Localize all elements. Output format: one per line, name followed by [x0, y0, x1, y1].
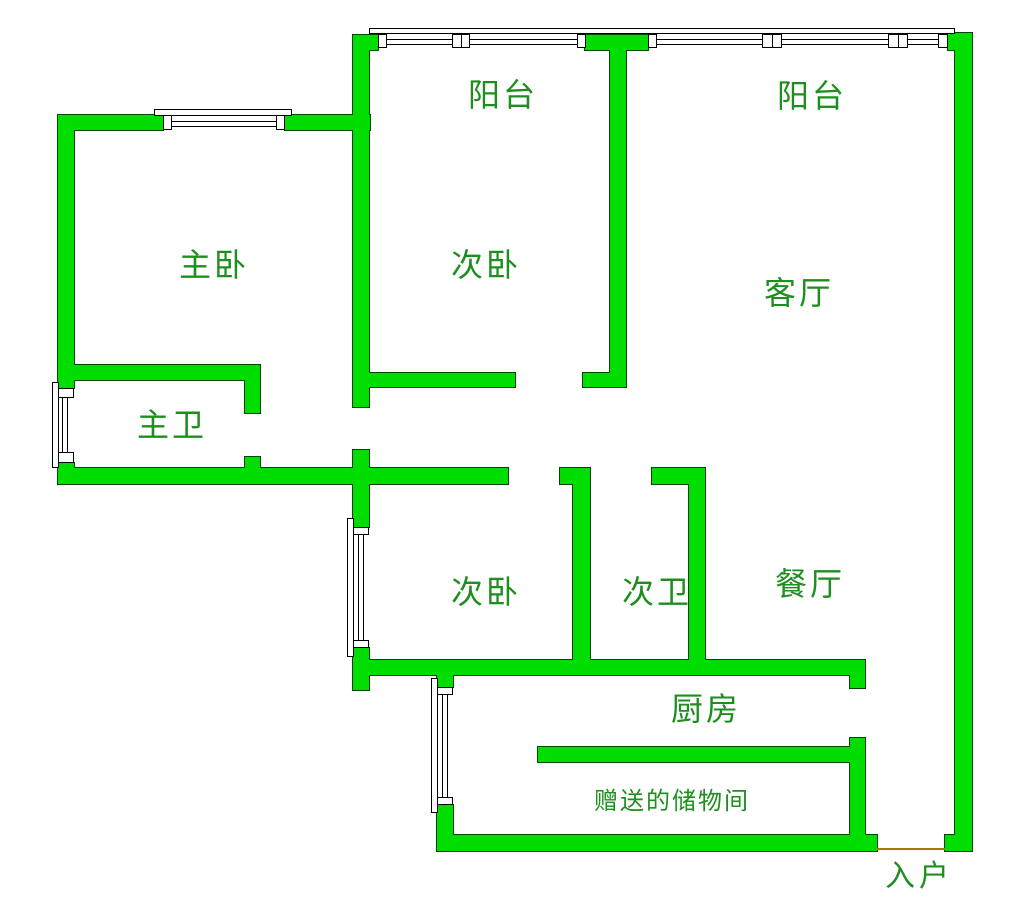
- window-glass-line: [363, 535, 364, 640]
- window-jamb: [353, 640, 369, 648]
- wall-bath2-left: [573, 468, 590, 675]
- window-jamb: [437, 687, 453, 695]
- room-label-master-bedroom: 主卧: [179, 249, 249, 281]
- room-label-kitchen: 厨房: [671, 693, 741, 725]
- window-glass-line: [447, 695, 448, 797]
- wall-bedroom2-bottom-right: [583, 373, 626, 387]
- wall-bedroom2-bottom-left: [353, 373, 515, 387]
- entrance-threshold: [877, 848, 945, 850]
- window-sill-second-bedroom: [347, 518, 354, 657]
- room-label-master-bathroom: 主卫: [137, 409, 207, 441]
- window-jamb: [938, 34, 948, 48]
- window-sill-kitchen: [431, 678, 438, 813]
- window-jamb: [577, 34, 586, 48]
- wall-mid-end-cap: [850, 675, 865, 688]
- wall-master-bottom: [58, 365, 260, 380]
- window-sill-master-bedroom: [154, 109, 292, 116]
- room-label-second-bathroom: 次卫: [622, 576, 692, 608]
- window-glass-line: [67, 398, 68, 452]
- room-label-entrance: 入户: [885, 862, 953, 892]
- wall-masterbath-door-jamb-top: [245, 380, 260, 413]
- window-glass-line: [387, 39, 577, 40]
- wall-balcony-divider: [610, 48, 626, 373]
- room-label-storage-room: 赠送的储物间: [594, 790, 750, 814]
- window-jamb: [353, 527, 369, 535]
- window-glass-line: [172, 121, 276, 122]
- room-label-living-room: 客厅: [764, 277, 834, 309]
- window-glass-line: [172, 126, 276, 127]
- wall-master-top-left: [58, 115, 163, 130]
- window-glass-line: [387, 44, 577, 45]
- room-label-second-bedroom-upper: 次卧: [451, 249, 521, 281]
- wall-bottom-left: [437, 835, 877, 851]
- wall-storage-top: [538, 747, 865, 762]
- wall-kitchen-window-top: [437, 675, 453, 687]
- window-mullion-line: [461, 34, 462, 48]
- window-glass-line: [442, 695, 443, 797]
- wall-right: [955, 33, 972, 851]
- wall-bedroom2-left-upper: [353, 35, 369, 407]
- room-label-balcony-right: 阳台: [777, 80, 847, 112]
- window-glass-line: [358, 535, 359, 640]
- room-label-dining-room: 餐厅: [775, 568, 845, 600]
- window-jamb: [437, 797, 453, 805]
- window-jamb: [276, 115, 285, 130]
- window-jamb: [163, 115, 172, 130]
- wall-bath2-right: [689, 468, 705, 675]
- floor-plan: 阳台 阳台 主卧 次卧 客厅 主卫 次卧 次卫 餐厅 厨房 赠送的储物间 入户: [0, 0, 1019, 908]
- window-mullion-line: [772, 34, 773, 48]
- window-jamb: [378, 34, 387, 48]
- wall-mid-horizontal: [353, 660, 865, 675]
- window-jamb: [648, 34, 657, 48]
- wall-hallway: [58, 468, 508, 484]
- room-label-second-bedroom-lower: 次卧: [451, 576, 521, 608]
- window-jamb: [58, 452, 74, 463]
- window-glass-line: [62, 398, 63, 452]
- room-label-balcony-left: 阳台: [468, 79, 538, 111]
- window-jamb: [58, 388, 74, 398]
- wall-left-upper: [58, 115, 74, 388]
- wall-bedroom2-left-mid: [353, 450, 369, 527]
- window-mullion-line: [898, 34, 899, 48]
